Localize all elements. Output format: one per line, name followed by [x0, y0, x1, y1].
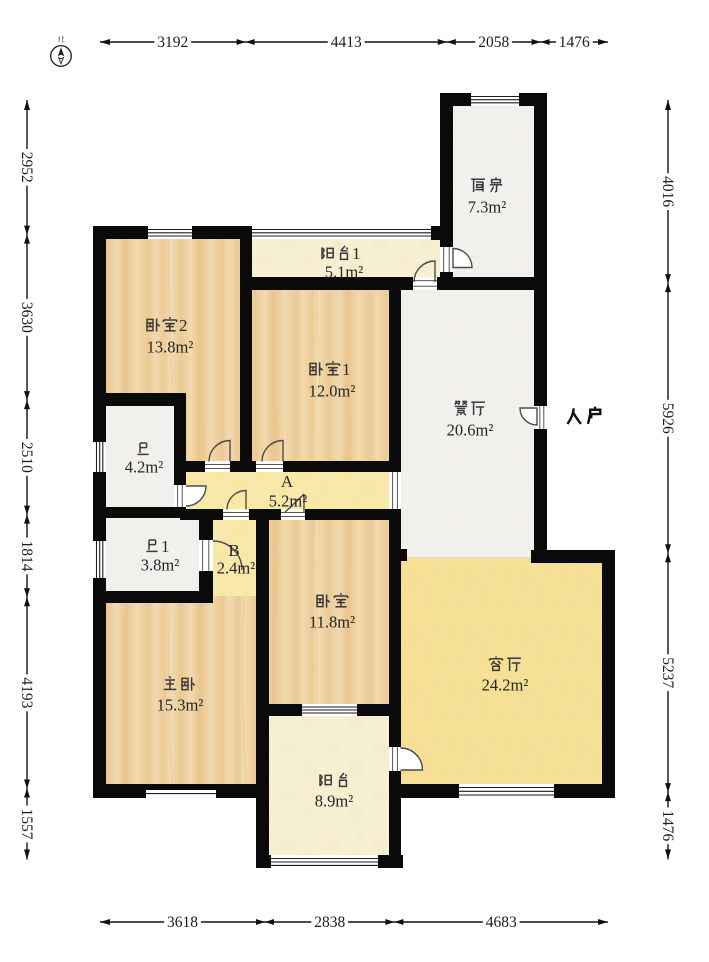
svg-text:2510: 2510: [18, 442, 35, 473]
svg-text:11.8m²: 11.8m²: [309, 613, 355, 632]
svg-text:3.8m²: 3.8m²: [141, 556, 179, 575]
svg-text:5.2m²: 5.2m²: [269, 492, 307, 511]
svg-text:15.3m²: 15.3m²: [157, 696, 204, 715]
svg-text:2058: 2058: [478, 34, 509, 51]
svg-text:1: 1: [161, 537, 170, 556]
svg-text:1476: 1476: [659, 810, 676, 841]
svg-text:7.3m²: 7.3m²: [468, 198, 506, 217]
svg-text:2838: 2838: [314, 914, 345, 931]
svg-text:4193: 4193: [18, 677, 35, 708]
svg-text:24.2m²: 24.2m²: [482, 676, 529, 695]
svg-text:5237: 5237: [659, 657, 676, 688]
svg-text:1814: 1814: [18, 541, 35, 572]
svg-text:5.1m²: 5.1m²: [325, 263, 363, 282]
svg-text:5926: 5926: [659, 403, 676, 434]
svg-text:4413: 4413: [331, 34, 362, 51]
svg-text:1: 1: [352, 244, 361, 263]
svg-text:4.2m²: 4.2m²: [125, 458, 163, 477]
svg-text:2.4m²: 2.4m²: [217, 559, 255, 578]
svg-text:3192: 3192: [157, 34, 188, 51]
svg-text:3618: 3618: [167, 914, 198, 931]
svg-text:12.0m²: 12.0m²: [309, 382, 356, 401]
svg-text:4683: 4683: [486, 914, 517, 931]
svg-text:8.9m²: 8.9m²: [315, 792, 353, 811]
svg-text:13.8m²: 13.8m²: [147, 338, 194, 357]
svg-text:2952: 2952: [18, 152, 35, 183]
svg-text:2: 2: [179, 316, 188, 335]
svg-text:3630: 3630: [18, 302, 35, 333]
svg-text:1476: 1476: [559, 34, 590, 51]
svg-text:4016: 4016: [659, 176, 676, 207]
svg-text:1: 1: [342, 360, 351, 379]
svg-text:B: B: [228, 541, 239, 560]
svg-text:A: A: [281, 472, 294, 491]
svg-text:1557: 1557: [18, 809, 35, 840]
svg-text:20.6m²: 20.6m²: [447, 421, 494, 440]
